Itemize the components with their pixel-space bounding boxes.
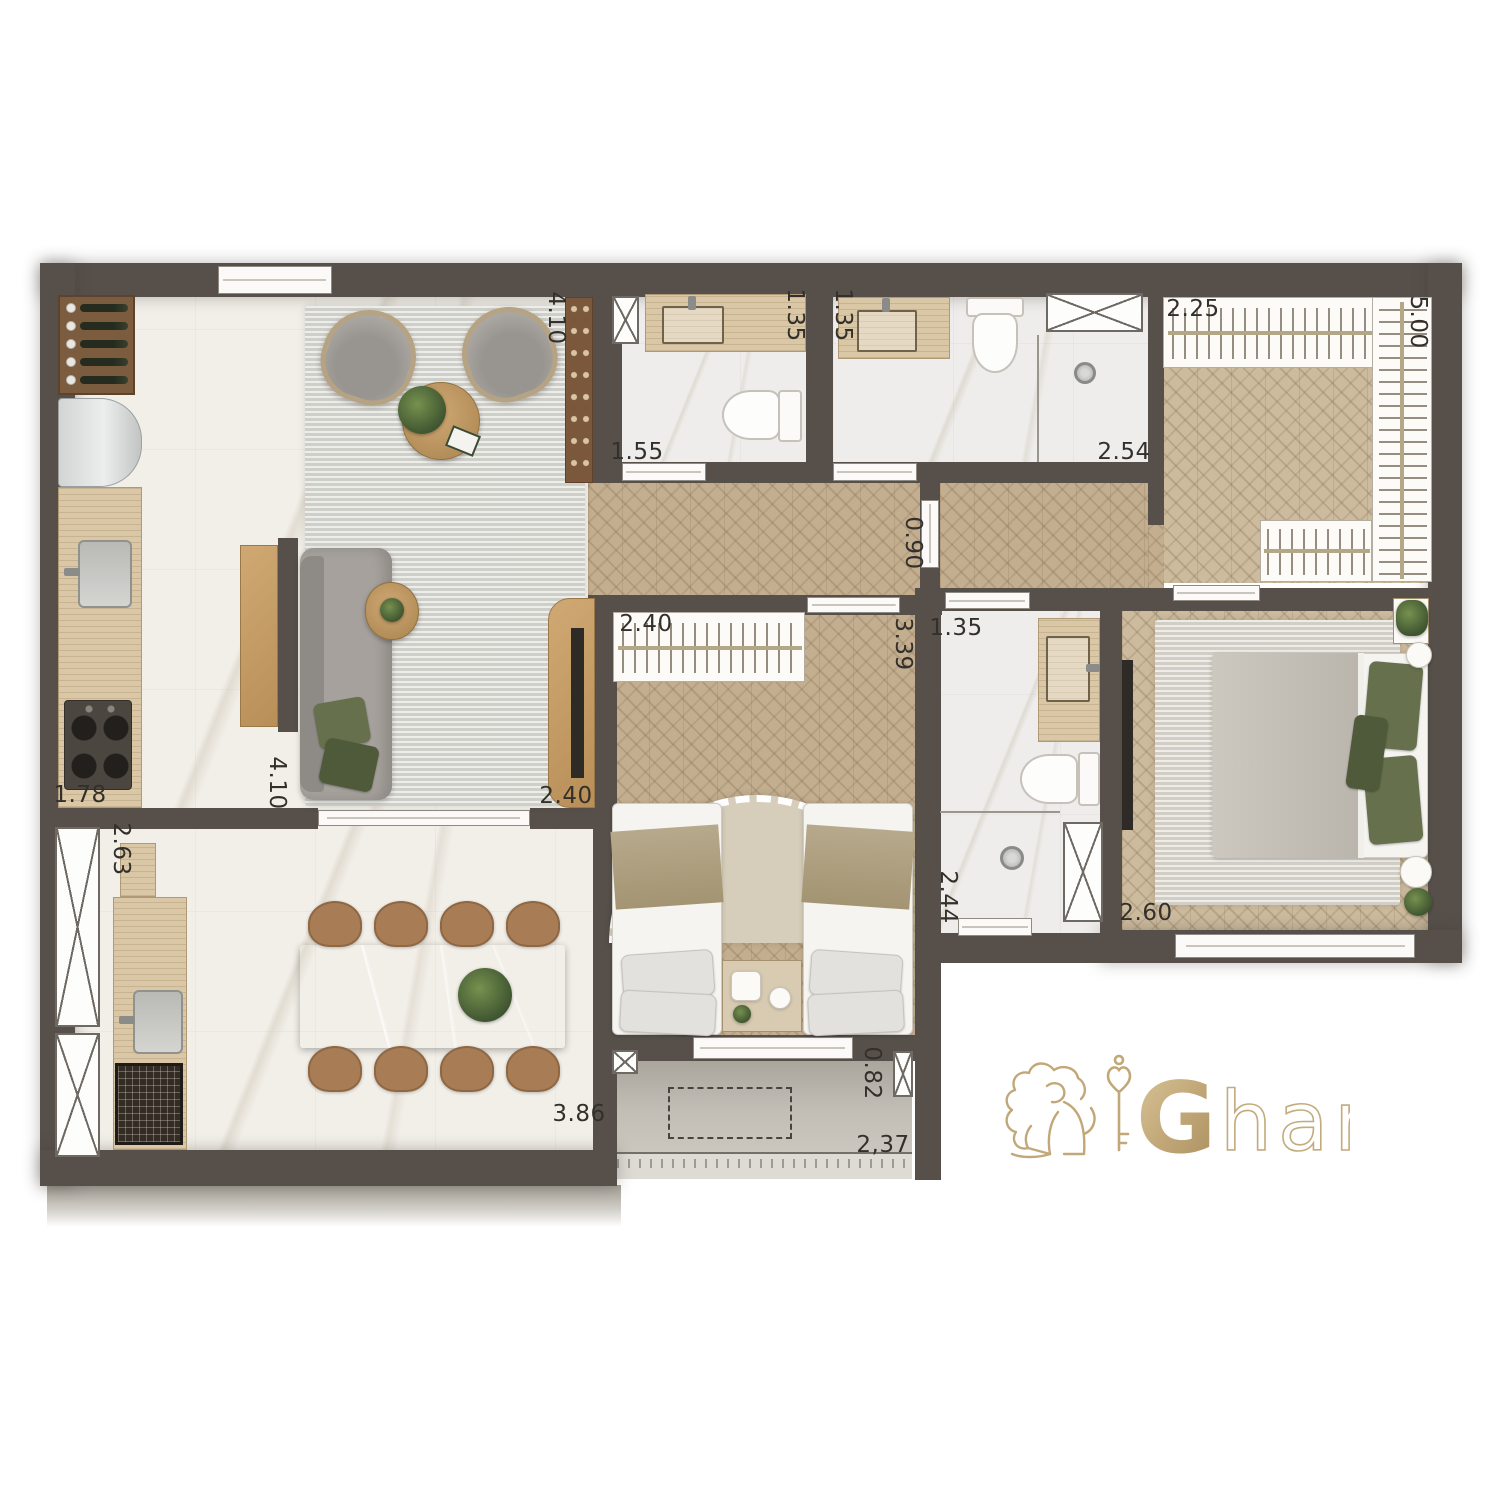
dining-centerpiece	[458, 968, 512, 1022]
bath1-basin	[662, 306, 724, 344]
closet-rod	[1400, 302, 1404, 579]
wine-bottle	[80, 358, 128, 366]
wall-right	[1428, 263, 1462, 963]
dimension-label: 2.40	[539, 783, 592, 809]
wine-bottle	[80, 304, 128, 312]
entry-door	[218, 266, 332, 294]
bath3-basin	[1046, 636, 1090, 702]
dimension-label: 2,37	[856, 1132, 909, 1158]
dining-chair	[440, 1046, 494, 1092]
dimension-label: 2.54	[1097, 439, 1150, 465]
window-bath2	[1046, 293, 1143, 332]
bath1-toilet-tank	[778, 390, 802, 442]
closet-rod	[1264, 549, 1370, 553]
wine-bottle	[80, 322, 128, 330]
bath2-faucet	[882, 298, 890, 312]
dining-counter-sink	[133, 990, 183, 1054]
wall-bottom-left	[40, 1150, 617, 1186]
bed-left-pillow-2	[619, 990, 717, 1037]
bedroom2-door	[807, 597, 900, 613]
bottle-cap	[66, 321, 76, 331]
dimension-label: 2.60	[1119, 900, 1172, 926]
master-lamp	[1406, 642, 1432, 668]
dimension-label: 0.90	[900, 516, 926, 569]
master-duvet	[1212, 653, 1364, 858]
logo-rest: har	[1220, 1075, 1350, 1170]
shaft-bath1	[612, 296, 639, 344]
dimension-label: 3.86	[552, 1101, 605, 1127]
lower-terrace-shadow	[47, 1185, 621, 1227]
shaft-balcony-left	[612, 1050, 638, 1074]
decor-shelf-panel	[565, 297, 593, 483]
bedroom2-window	[693, 1037, 853, 1059]
bath3-bottom-window	[958, 918, 1032, 936]
bath2-basin	[857, 310, 917, 352]
wine-bottle	[80, 376, 128, 384]
bottle-cap	[66, 303, 76, 313]
dining-chair	[374, 901, 428, 947]
coffee-table-plant	[398, 386, 446, 434]
dimension-label: 1.35	[929, 615, 982, 641]
dimension-label: 4.10	[543, 291, 569, 344]
floor-hallway	[588, 483, 920, 597]
sofa-backrest	[300, 556, 324, 792]
window-dining-left	[55, 1033, 100, 1157]
dimension-label: 1.35	[782, 288, 808, 341]
tray	[731, 971, 761, 1001]
bath3-shower-head	[1000, 846, 1024, 870]
dining-table	[300, 945, 565, 1048]
brand-logo: G har	[998, 1050, 1350, 1182]
master-door	[1173, 585, 1260, 601]
bath2-shower-head	[1074, 362, 1096, 384]
bath1-faucet	[688, 296, 696, 310]
dimension-label: 1.55	[610, 439, 663, 465]
cup	[769, 987, 791, 1009]
built-in-grill	[115, 1063, 183, 1145]
bath3-toilet-tank	[1078, 752, 1100, 806]
wall-living-dining-b	[530, 808, 593, 829]
tv-screen	[571, 628, 584, 778]
balcony-marked-area	[668, 1087, 792, 1139]
bath2-door	[833, 463, 917, 481]
bed-right-blanket	[801, 824, 914, 909]
living-dining-opening	[318, 810, 530, 826]
dimension-label: 0.82	[859, 1046, 885, 1099]
bedroom2-nightstand	[722, 960, 802, 1032]
bottle-cap	[66, 357, 76, 367]
bottle-cap	[66, 375, 76, 385]
dining-chair	[440, 901, 494, 947]
bath1-door	[622, 463, 706, 481]
wine-rack	[58, 295, 135, 395]
master-tv-panel	[1122, 660, 1133, 830]
window-bath3	[1063, 822, 1103, 922]
kitchen-sink	[78, 540, 132, 608]
dimension-label: 2.44	[935, 870, 961, 923]
heart-key-icon	[1108, 1056, 1130, 1150]
bed-left-blanket	[610, 824, 723, 909]
floor-plan-canvas: 4.10 1.35 1.35 2.25 5.00 1.55 2.54 0.90 …	[0, 0, 1500, 1500]
logo-initial: G	[1136, 1062, 1216, 1176]
dimension-label: 4.10	[264, 756, 290, 809]
refrigerator	[58, 398, 142, 487]
dimension-label: 1.35	[830, 288, 856, 341]
floor-corridor	[940, 483, 1148, 589]
wall-bath3-east	[1100, 611, 1122, 941]
master-plant-bottom	[1404, 888, 1432, 916]
bed-right-pillow-2	[807, 990, 905, 1037]
dimension-label: 1.78	[53, 782, 106, 808]
bath1-toilet	[722, 390, 780, 440]
dining-chair	[308, 1046, 362, 1092]
side-table-plant	[380, 598, 404, 622]
master-window	[1175, 934, 1415, 958]
bath3-faucet	[1086, 664, 1100, 672]
wall-bath-divider	[806, 263, 833, 483]
bath2-shower-glass	[1037, 335, 1039, 462]
cooktop	[64, 700, 132, 790]
bottle-cap	[66, 339, 76, 349]
small-plant	[733, 1005, 751, 1023]
walkin-closet-bottom	[1260, 520, 1372, 582]
dining-chair	[374, 1046, 428, 1092]
master-side-table	[1400, 856, 1432, 888]
wall-bath3-bottom	[915, 933, 1122, 963]
wine-bottle	[80, 340, 128, 348]
bath3-shower-glass	[940, 811, 1060, 813]
dimension-label: 2.25	[1166, 296, 1219, 322]
ghar-logo-graphic: G har	[998, 1050, 1350, 1182]
floor-corridor-opening	[1148, 525, 1164, 589]
dimension-label: 3.39	[890, 617, 916, 670]
dimension-label: 2.63	[108, 822, 134, 875]
dimension-label: 5.00	[1405, 295, 1431, 348]
dining-chair	[506, 901, 560, 947]
dining-chair	[506, 1046, 560, 1092]
wall-closet-west	[1148, 263, 1164, 525]
lion-icon	[1007, 1064, 1095, 1157]
kitchen-faucet	[64, 568, 80, 576]
dimension-label: 2.40	[619, 611, 672, 637]
closet-rod	[618, 646, 802, 650]
window-kitchen-left	[55, 827, 100, 1027]
dining-chair	[308, 901, 362, 947]
partition-wall	[278, 538, 298, 732]
sideboard	[240, 545, 278, 727]
bath3-toilet	[1020, 754, 1078, 804]
wall-bath1-west	[593, 263, 622, 467]
shaft-balcony-right	[893, 1051, 913, 1097]
dining-counter-faucet	[119, 1016, 135, 1024]
bath3-door	[945, 592, 1030, 609]
master-plant-top	[1396, 600, 1428, 636]
bath2-toilet	[972, 313, 1018, 373]
